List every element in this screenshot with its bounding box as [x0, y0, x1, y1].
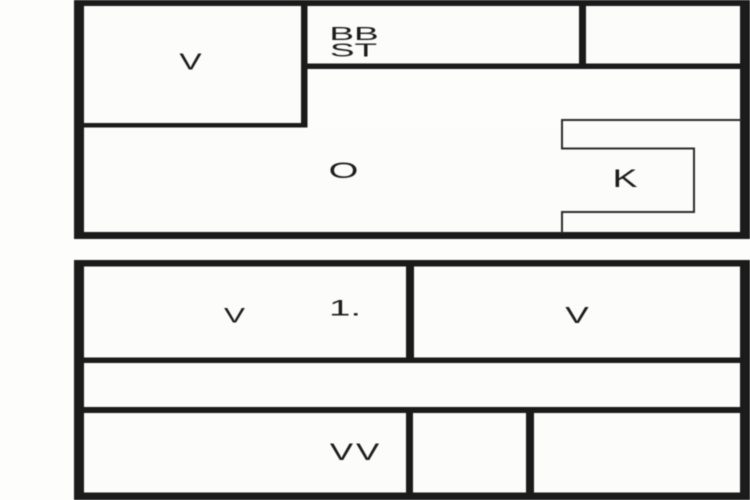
svg-text:ST: ST	[330, 41, 377, 61]
svg-text:V: V	[565, 303, 589, 329]
svg-text:V: V	[224, 304, 245, 328]
svg-text:1.: 1.	[329, 296, 361, 321]
svg-text:K: K	[612, 164, 637, 192]
svg-text:O: O	[329, 158, 359, 183]
svg-text:V: V	[179, 49, 202, 75]
svg-text:VV: VV	[330, 439, 382, 465]
